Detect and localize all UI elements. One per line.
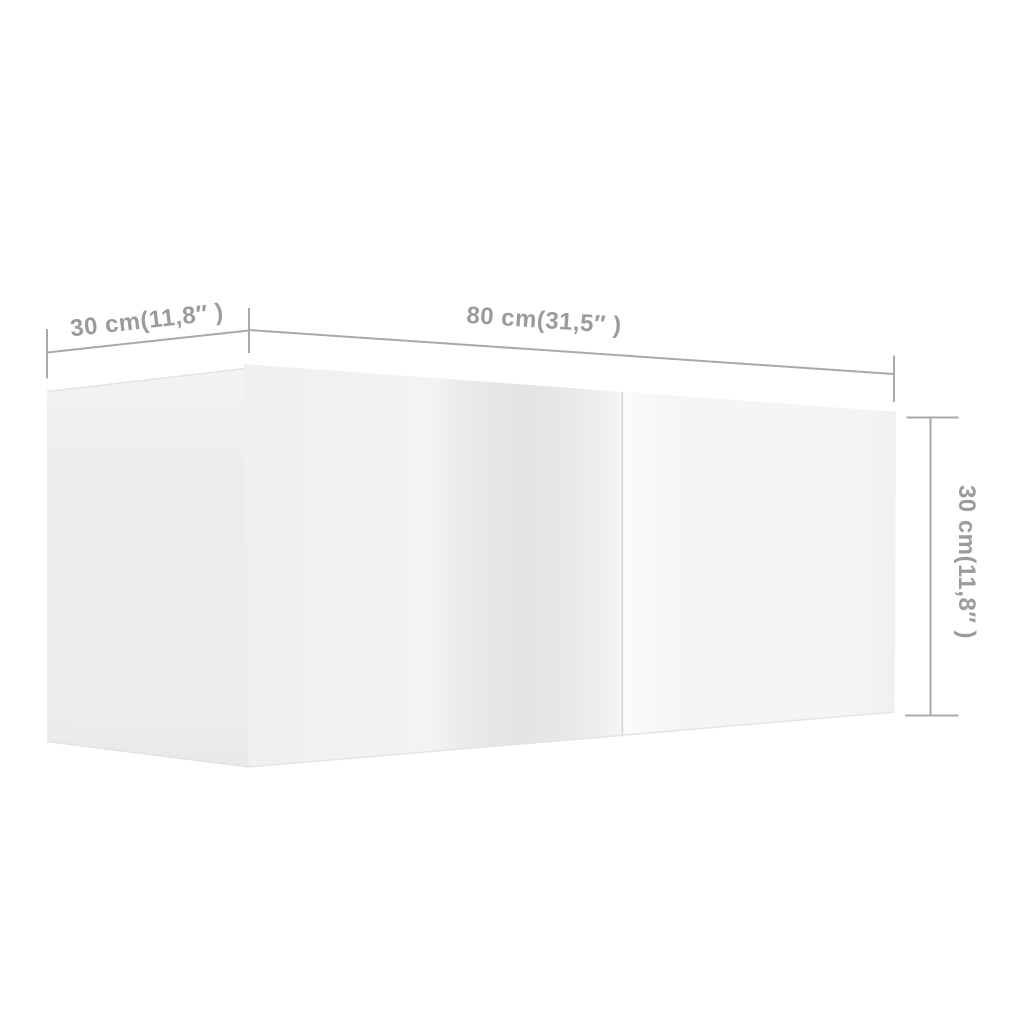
product-dimension-diagram: 30 cm(11,8″ ) 80 cm(31,5″ ) 30 cm(11,8″ … — [0, 0, 1024, 1024]
cabinet-drawing — [0, 0, 1024, 1024]
cabinet-side-panel-shading — [47, 369, 249, 768]
cabinet-left-door-shading — [244, 364, 622, 767]
height-dimension-label: 30 cm(11,8″ ) — [952, 485, 980, 639]
cabinet-right-door-shading — [622, 392, 896, 737]
